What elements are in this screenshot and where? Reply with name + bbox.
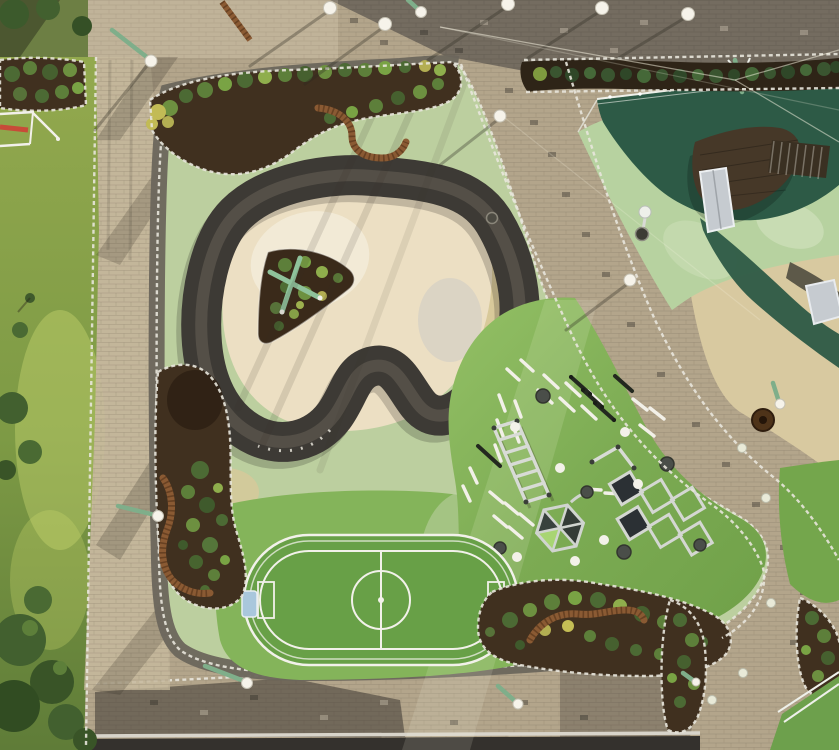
pole-shadow — [130, 60, 132, 260]
aerial-playground-photo: Aerial drone view of a playground park a… — [0, 0, 839, 750]
manhole-cover — [487, 213, 498, 224]
tree-pit-center — [759, 416, 767, 424]
mini-soccer-field — [242, 535, 520, 665]
scene-canvas: Aerial drone view of a playground park a… — [0, 0, 839, 750]
goal-left — [242, 591, 257, 617]
top-left-planting-bed — [0, 58, 86, 111]
centre-spot — [378, 597, 384, 603]
pole-shadow — [108, 60, 110, 250]
tree-canopy — [72, 16, 92, 36]
